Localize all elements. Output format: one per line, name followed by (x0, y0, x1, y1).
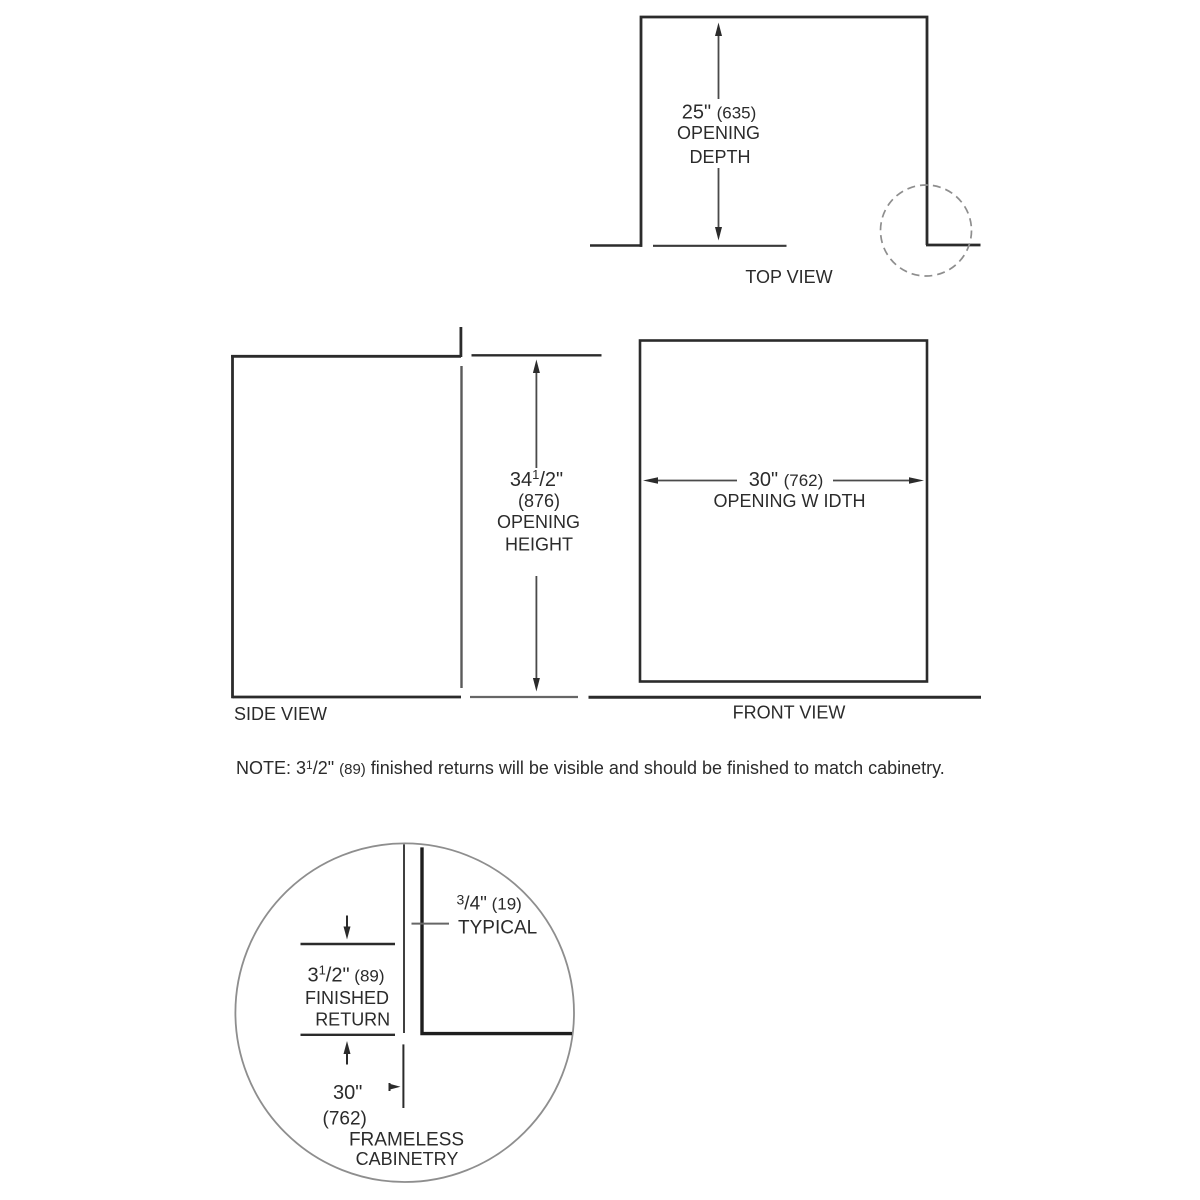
svg-text:3/4" (19): 3/4" (19) (457, 892, 522, 915)
svg-text:(762): (762) (323, 1109, 367, 1130)
svg-text:25" (635): 25" (635) (682, 102, 757, 124)
svg-text:TOP VIEW: TOP VIEW (745, 267, 832, 287)
svg-text:NOTE: 31/2" (89) finished retu: NOTE: 31/2" (89) finished returns will b… (236, 758, 945, 778)
svg-text:RETURN: RETURN (315, 1010, 390, 1030)
svg-text:DEPTH: DEPTH (689, 147, 750, 167)
svg-text:SIDE VIEW: SIDE VIEW (234, 704, 327, 724)
svg-text:FRONT VIEW: FRONT VIEW (733, 703, 846, 723)
svg-text:HEIGHT: HEIGHT (505, 535, 573, 555)
svg-text:OPENING: OPENING (677, 123, 760, 143)
svg-text:TYPICAL: TYPICAL (458, 918, 537, 939)
svg-text:30" (762): 30" (762) (749, 469, 824, 491)
svg-text:OPENING: OPENING (497, 512, 580, 532)
svg-text:(876): (876) (518, 491, 560, 511)
svg-text:FINISHED: FINISHED (305, 988, 389, 1008)
svg-text:30": 30" (333, 1082, 362, 1104)
svg-text:CABINETRY: CABINETRY (356, 1149, 459, 1169)
svg-text:FRAMELESS: FRAMELESS (349, 1130, 464, 1151)
svg-text:OPENING W IDTH: OPENING W IDTH (714, 491, 866, 511)
